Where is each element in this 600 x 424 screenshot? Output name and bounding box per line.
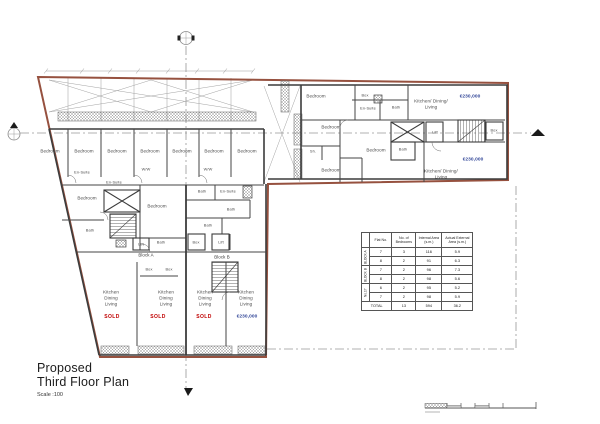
- table-group-block-a: BLOCK A: [362, 248, 370, 266]
- table-cell-external: 5.2: [442, 284, 473, 293]
- table-row: 72985.9: [362, 293, 473, 302]
- table-total-external: 36.2: [442, 302, 473, 311]
- table-cell-bedrooms: 2: [392, 266, 416, 275]
- drawing-title-line-2: Third Floor Plan: [37, 376, 129, 390]
- drawing-title-line-1: Proposed: [37, 362, 129, 376]
- table-cell-internal: 116: [416, 248, 442, 257]
- table-cell-external: 5.6: [442, 275, 473, 284]
- dimension-lines: [44, 69, 255, 113]
- table-cell-external: 5.9: [442, 248, 473, 257]
- floor-plan-page: BedroomBedroomBedroomBedroomBedroomBedro…: [0, 0, 600, 424]
- table-cell-bedrooms: 2: [392, 284, 416, 293]
- table-cell-internal: 96: [416, 266, 442, 275]
- table-cell-external: 6.3: [442, 257, 473, 266]
- table-cell-external: 7.3: [442, 266, 473, 275]
- drawing-title-block: Proposed Third Floor Plan Scale :100: [37, 362, 129, 398]
- table-cell-bedrooms: 3: [392, 248, 416, 257]
- area-schedule-table: Flat No.No. of BedroomsInternal Area (s.…: [361, 232, 473, 311]
- scale-bar: [425, 402, 536, 413]
- table-row: BLOCK A731165.9: [362, 248, 473, 257]
- table-row: 82916.3: [362, 257, 473, 266]
- table-total-bedrooms: 13: [392, 302, 416, 311]
- table-group-block-b: BLOCK B: [362, 266, 370, 284]
- table-cell-bedrooms: 2: [392, 275, 416, 284]
- table-header-flat-no: Flat No.: [370, 233, 392, 248]
- drawing-scale-note: Scale :100: [37, 392, 129, 398]
- table-cell-internal: 98: [416, 275, 442, 284]
- table-cell-internal: 91: [416, 257, 442, 266]
- terrace-bracing-lines: [49, 80, 300, 182]
- table-cell-flat: 8: [370, 275, 392, 284]
- table-row: BLOCK B72967.3: [362, 266, 473, 275]
- table-header-no-of-bedrooms: No. of Bedrooms: [392, 233, 416, 248]
- table-cell-bedrooms: 2: [392, 257, 416, 266]
- table-row: 82985.6: [362, 275, 473, 284]
- table-row: No.1762955.2: [362, 284, 473, 293]
- table-cell-flat: 8: [370, 257, 392, 266]
- table-group-no-17: No.17: [362, 284, 370, 302]
- table-cell-flat: 7: [370, 248, 392, 257]
- table-corner-cell: [362, 233, 370, 248]
- table-cell-bedrooms: 2: [392, 293, 416, 302]
- table-cell-flat: 6: [370, 284, 392, 293]
- table-cell-internal: 95: [416, 284, 442, 293]
- table-cell-external: 5.9: [442, 293, 473, 302]
- table-total-internal: 594: [416, 302, 442, 311]
- table-cell-internal: 98: [416, 293, 442, 302]
- table-total-label: TOTAL: [362, 302, 392, 311]
- table-cell-flat: 7: [370, 266, 392, 275]
- table-header-actual-external-area-s-m: Actual External Area (s.m.): [442, 233, 473, 248]
- table-header-internal-area-s-m: Internal Area (s.m.): [416, 233, 442, 248]
- table-total-row: TOTAL1359436.2: [362, 302, 473, 311]
- table-cell-flat: 7: [370, 293, 392, 302]
